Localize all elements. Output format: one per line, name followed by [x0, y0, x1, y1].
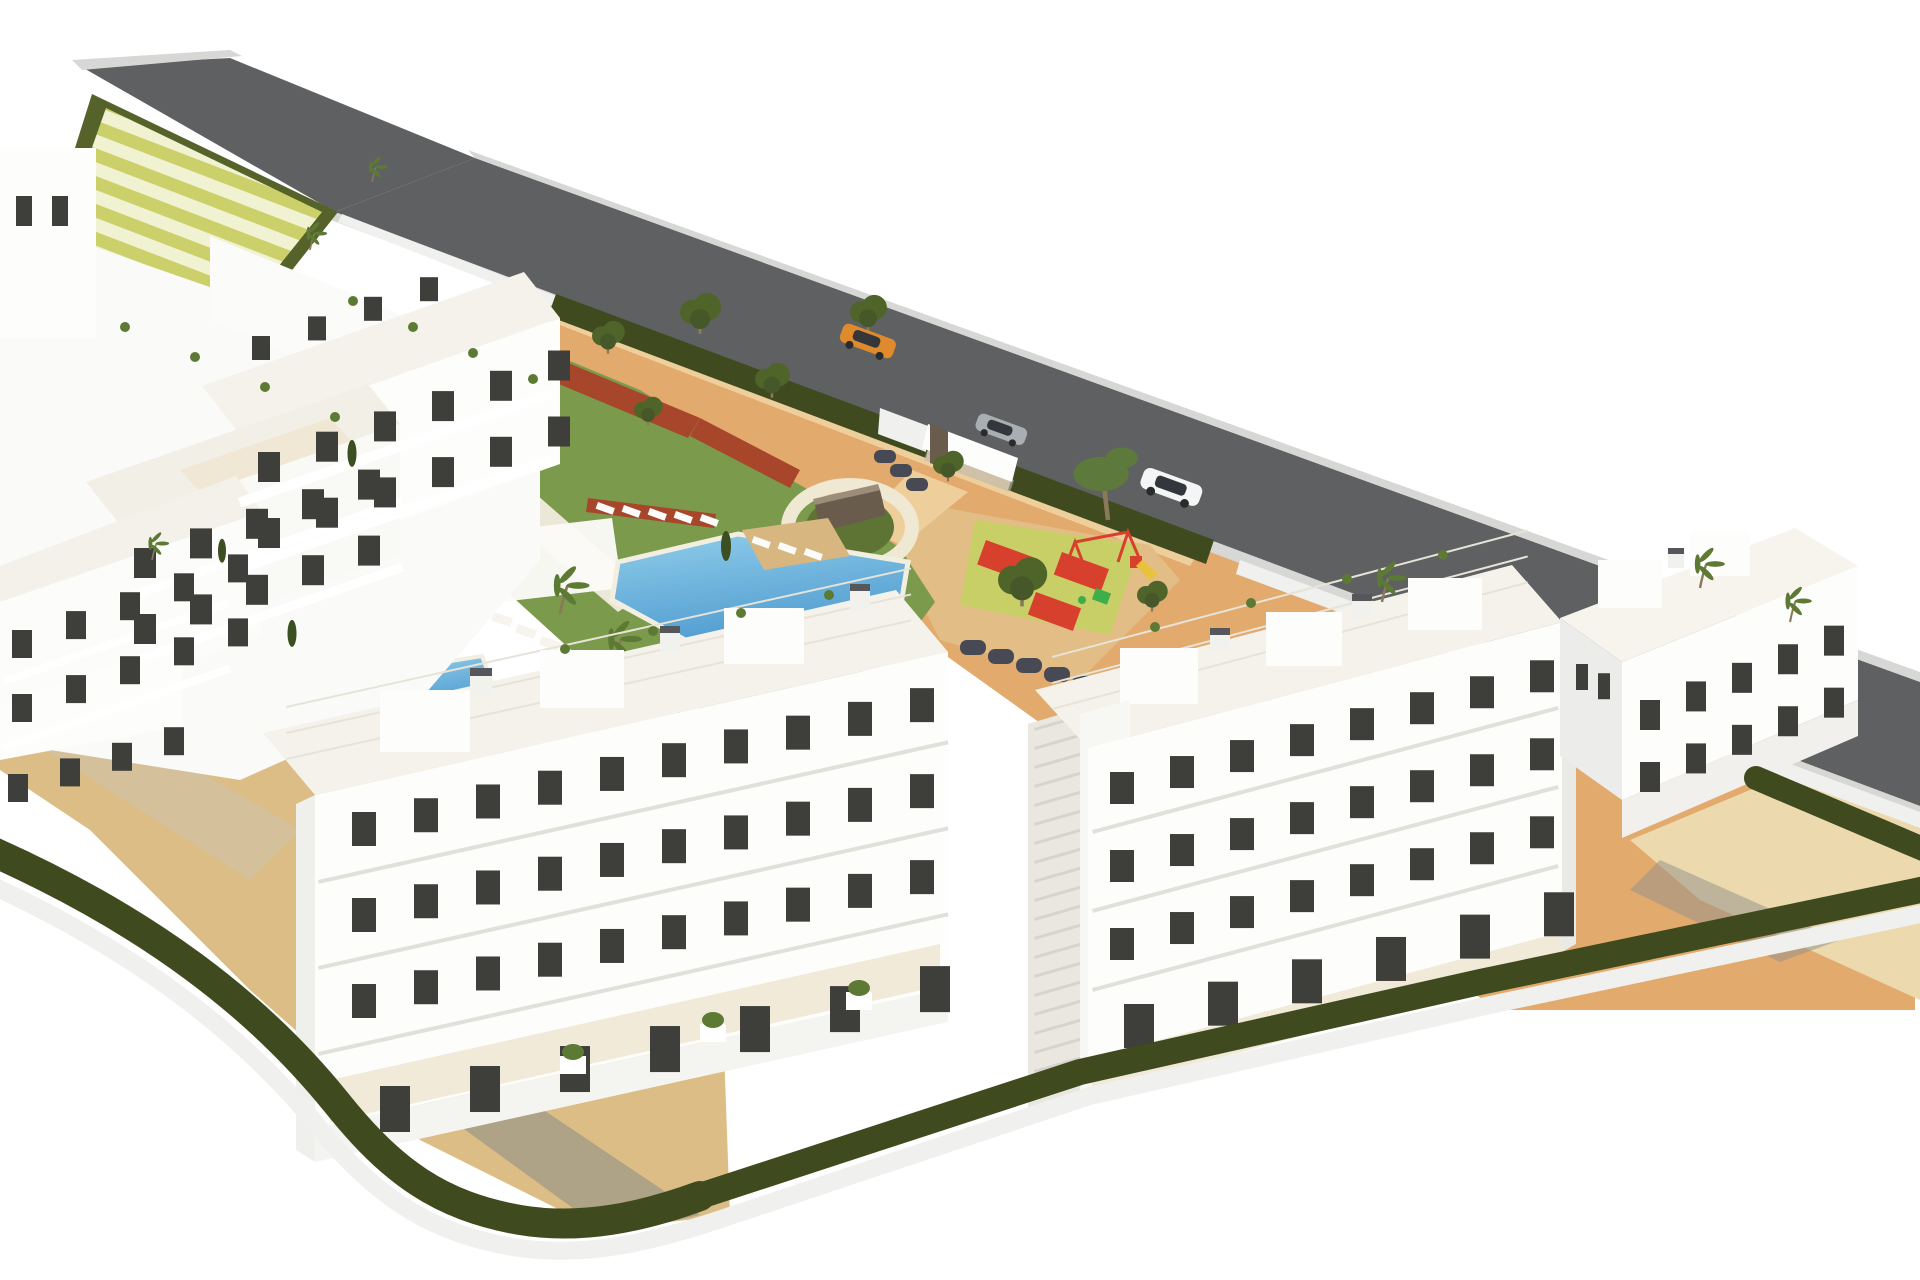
door	[650, 1026, 680, 1072]
roof-plant	[1342, 574, 1352, 584]
chimney-vent	[660, 626, 680, 633]
window	[786, 802, 810, 836]
window	[12, 694, 32, 722]
roof-plant	[330, 412, 340, 422]
window	[1778, 644, 1798, 674]
window	[662, 915, 686, 949]
window	[164, 727, 184, 755]
roof-plant	[1246, 598, 1256, 608]
door	[740, 1006, 770, 1052]
window	[1110, 850, 1134, 882]
window	[1290, 880, 1314, 912]
window	[490, 371, 512, 401]
window	[1170, 912, 1194, 944]
bush	[906, 478, 928, 491]
render-canvas	[0, 0, 1920, 1280]
spring-rider	[1078, 596, 1086, 604]
roof-box	[1408, 578, 1482, 630]
window	[1640, 700, 1660, 730]
window	[1350, 864, 1374, 896]
window	[1110, 772, 1134, 804]
window	[1410, 692, 1434, 724]
window	[228, 554, 248, 582]
chimney-vent	[1352, 594, 1372, 601]
window	[1170, 834, 1194, 866]
planter-plant	[562, 1044, 584, 1060]
window	[420, 277, 438, 301]
window	[358, 470, 380, 500]
window	[120, 656, 140, 684]
door	[1208, 982, 1238, 1026]
door	[920, 966, 950, 1012]
window	[12, 630, 32, 658]
cypress-tree	[348, 440, 357, 467]
window	[352, 812, 376, 846]
window	[246, 509, 268, 539]
window	[848, 874, 872, 908]
window	[374, 411, 396, 441]
window	[52, 196, 68, 226]
window	[174, 637, 194, 665]
window	[414, 884, 438, 918]
cypress-tree	[218, 539, 226, 563]
roof-box	[380, 690, 470, 752]
roof-plant	[1150, 622, 1160, 632]
door	[1124, 1004, 1154, 1048]
door	[1460, 915, 1490, 959]
window	[910, 774, 934, 808]
window	[476, 956, 500, 990]
window	[538, 771, 562, 805]
bush	[890, 464, 912, 477]
roof-plant	[408, 322, 418, 332]
window	[60, 758, 80, 786]
window	[190, 528, 212, 558]
window	[1598, 673, 1610, 699]
window	[724, 729, 748, 763]
window	[1410, 770, 1434, 802]
door	[380, 1086, 410, 1132]
scene-svg	[0, 0, 1920, 1280]
window	[910, 860, 934, 894]
window	[228, 618, 248, 646]
window	[432, 457, 454, 487]
roof-box	[540, 650, 624, 708]
window	[352, 898, 376, 932]
door	[1292, 959, 1322, 1003]
roof-plant	[120, 322, 130, 332]
roof-plant	[560, 644, 570, 654]
window	[16, 196, 32, 226]
window	[1290, 724, 1314, 756]
window	[246, 575, 268, 605]
window	[414, 798, 438, 832]
window	[120, 592, 140, 620]
window	[1470, 754, 1494, 786]
window	[548, 351, 570, 381]
window	[848, 702, 872, 736]
door	[1544, 892, 1574, 936]
roof-box	[724, 608, 804, 664]
roof-plant	[1438, 550, 1448, 560]
window	[1530, 738, 1554, 770]
window	[1170, 756, 1194, 788]
chimney-vent	[470, 668, 492, 676]
chimney-vent	[1668, 548, 1684, 554]
window	[316, 432, 338, 462]
window	[600, 757, 624, 791]
roof-box	[1266, 612, 1342, 666]
window	[1824, 688, 1844, 718]
window	[1686, 681, 1706, 711]
window	[724, 815, 748, 849]
window	[1350, 708, 1374, 740]
bush	[960, 640, 986, 655]
window	[786, 888, 810, 922]
roof-plant	[528, 374, 538, 384]
window	[1290, 802, 1314, 834]
roof-box	[1598, 560, 1662, 608]
window	[1732, 663, 1752, 693]
window	[134, 548, 156, 578]
window	[1686, 743, 1706, 773]
window	[1530, 660, 1554, 692]
window	[1350, 786, 1374, 818]
planter-plant	[702, 1012, 724, 1028]
window	[252, 336, 270, 360]
window	[1824, 626, 1844, 656]
window	[662, 829, 686, 863]
door	[1376, 937, 1406, 981]
window	[1230, 818, 1254, 850]
door	[470, 1066, 500, 1112]
window	[786, 716, 810, 750]
window	[1640, 762, 1660, 792]
window	[352, 984, 376, 1018]
window	[1530, 816, 1554, 848]
cypress-tree	[288, 620, 297, 647]
roof-plant	[190, 352, 200, 362]
roof-plant	[648, 626, 658, 636]
spring-rider	[1093, 567, 1103, 577]
window	[1732, 725, 1752, 755]
window	[548, 417, 570, 447]
window	[302, 555, 324, 585]
window	[432, 391, 454, 421]
planter-plant	[848, 980, 870, 996]
window	[724, 901, 748, 935]
roof-plant	[260, 382, 270, 392]
window	[600, 929, 624, 963]
bush	[874, 450, 896, 463]
window	[538, 857, 562, 891]
roof-plant	[736, 608, 746, 618]
window	[476, 870, 500, 904]
window	[112, 743, 132, 771]
roof-box	[1120, 648, 1198, 704]
window	[174, 573, 194, 601]
cypress-tree	[721, 531, 731, 561]
chimney-vent	[1210, 628, 1230, 635]
window	[538, 943, 562, 977]
roof-plant	[468, 348, 478, 358]
window	[848, 788, 872, 822]
b1-corner-tower	[0, 148, 96, 338]
window	[8, 774, 28, 802]
window	[358, 536, 380, 566]
window	[490, 437, 512, 467]
roof-plant	[348, 296, 358, 306]
window	[1470, 832, 1494, 864]
window	[258, 452, 280, 482]
window	[662, 743, 686, 777]
stair-walkway	[1028, 706, 1088, 1120]
window	[302, 489, 324, 519]
window	[66, 611, 86, 639]
window	[1778, 706, 1798, 736]
window	[66, 675, 86, 703]
window	[1230, 896, 1254, 928]
bush	[988, 649, 1014, 664]
window	[910, 688, 934, 722]
roof-plant	[824, 590, 834, 600]
window	[1230, 740, 1254, 772]
window	[600, 843, 624, 877]
window	[476, 784, 500, 818]
window	[1410, 848, 1434, 880]
window	[308, 316, 326, 340]
window	[414, 970, 438, 1004]
bush	[1016, 658, 1042, 673]
window	[364, 297, 382, 321]
window	[1110, 928, 1134, 960]
chimney-vent	[850, 584, 870, 591]
window	[1576, 664, 1588, 690]
window	[1470, 676, 1494, 708]
